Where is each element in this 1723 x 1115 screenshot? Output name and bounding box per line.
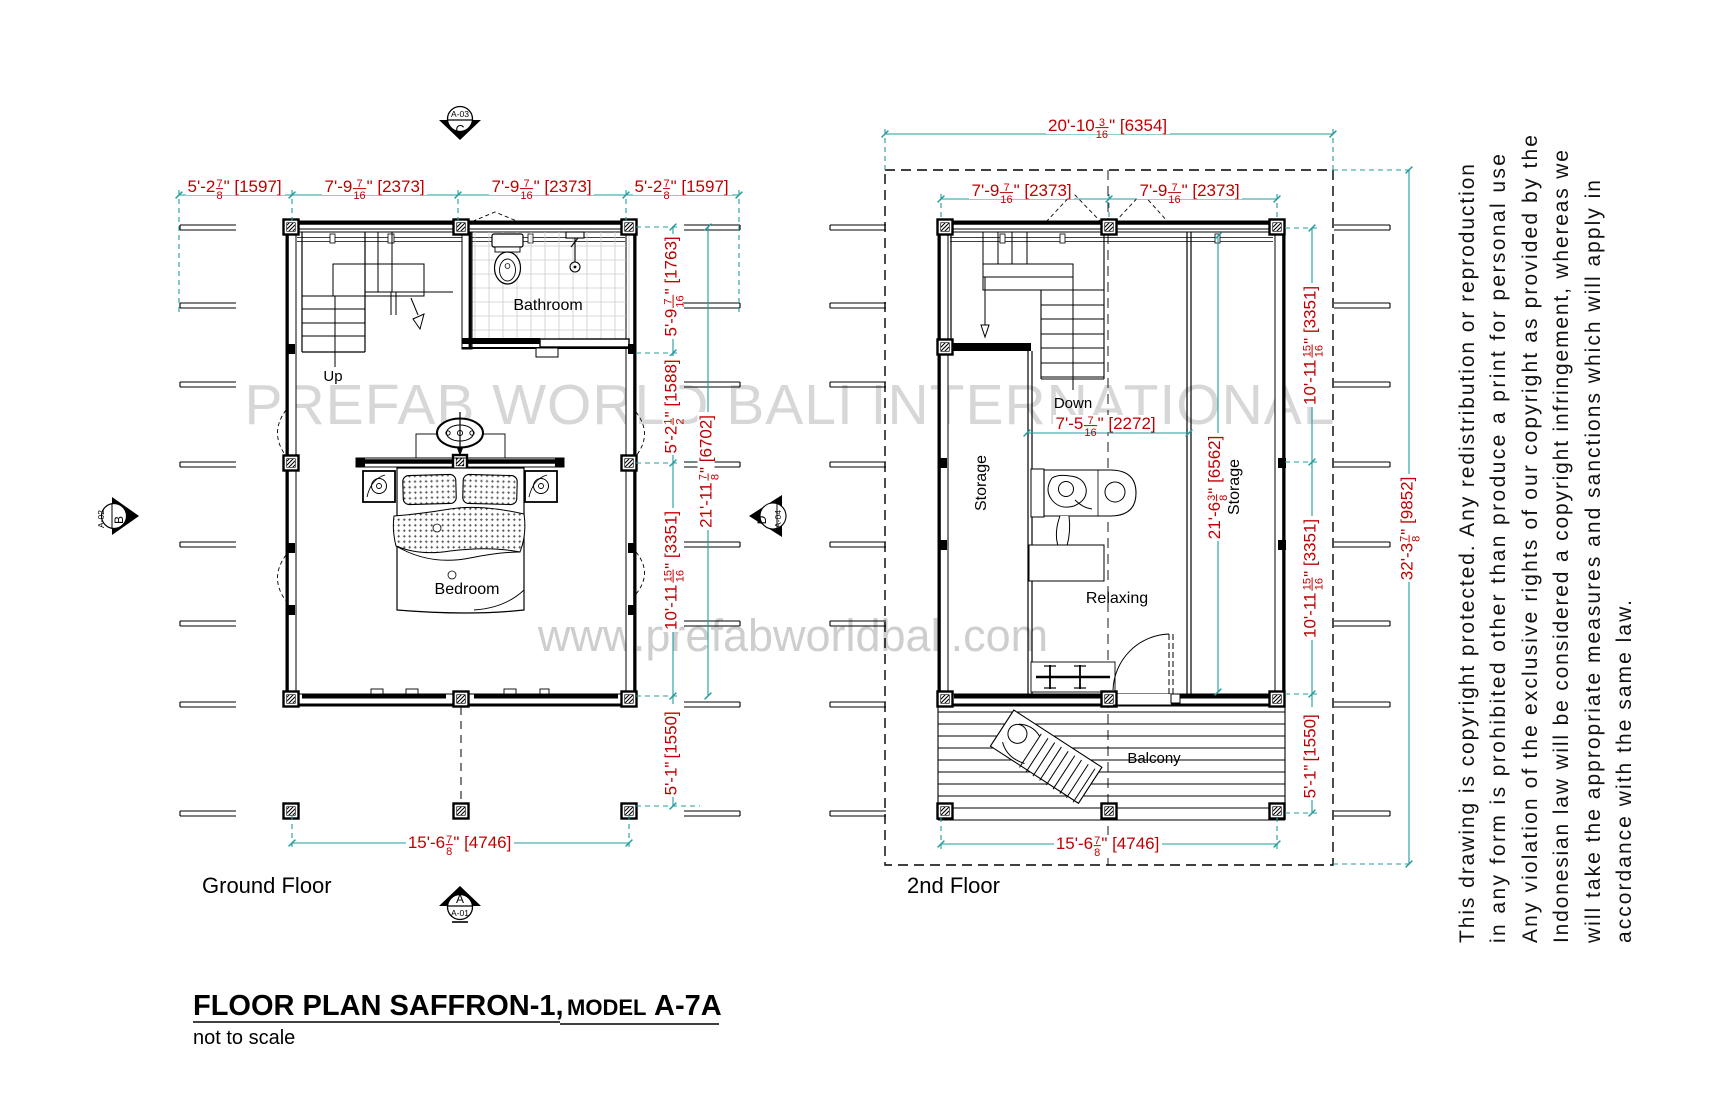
svg-text:Storage: Storage: [1226, 459, 1243, 515]
svg-text:Down: Down: [1054, 395, 1092, 412]
svg-text:A-03: A-03: [451, 109, 469, 119]
svg-text:15'-6: 15'-6: [408, 833, 445, 852]
svg-text:[1550]: [1550]: [1301, 714, 1320, 761]
svg-text:" [3351]: " [3351]: [1301, 519, 1320, 577]
svg-text:21'-11: 21'-11: [697, 482, 716, 527]
svg-text:16: 16: [1000, 194, 1012, 206]
svg-text:7'-9: 7'-9: [492, 177, 520, 196]
svg-text:" [4746]: " [4746]: [1101, 834, 1159, 853]
svg-text:32'-3: 32'-3: [1398, 543, 1417, 580]
svg-text:" [2272]: " [2272]: [1098, 414, 1156, 433]
svg-text:8: 8: [710, 474, 722, 480]
svg-text:8: 8: [1411, 536, 1423, 542]
svg-text:FLOOR PLAN SAFFRON-1,: FLOOR PLAN SAFFRON-1,: [193, 990, 564, 1022]
svg-text:A-01: A-01: [451, 908, 469, 918]
svg-text:5'-1": 5'-1": [662, 762, 681, 796]
svg-text:" [3351]: " [3351]: [662, 511, 681, 569]
svg-text:16: 16: [353, 190, 365, 202]
svg-text:7'-5: 7'-5: [1056, 414, 1084, 433]
svg-text:" [2373]: " [2373]: [534, 177, 592, 196]
svg-text:" [1597]: " [1597]: [671, 177, 729, 196]
svg-text:" [6562]: " [6562]: [1205, 436, 1224, 494]
svg-text:not to scale: not to scale: [193, 1027, 295, 1049]
svg-text:16: 16: [1084, 427, 1096, 439]
svg-text:5'-2: 5'-2: [188, 177, 216, 196]
svg-text:A-02: A-02: [96, 510, 106, 528]
svg-text:Balcony: Balcony: [1127, 750, 1181, 767]
svg-text:21'-6: 21'-6: [1205, 502, 1224, 539]
svg-text:Up: Up: [323, 368, 342, 385]
svg-text:" [9852]: " [9852]: [1398, 477, 1417, 535]
svg-text:PREFAB WORLD BALI INTERNATIONA: PREFAB WORLD BALI INTERNATIONAL: [245, 373, 1336, 437]
svg-text:www.prefabworldbali.com: www.prefabworldbali.com: [537, 610, 1048, 661]
svg-text:Bathroom: Bathroom: [513, 297, 582, 314]
svg-text:16: 16: [520, 190, 532, 202]
svg-text:" [3351]: " [3351]: [1301, 286, 1320, 344]
svg-text:" [2373]: " [2373]: [1182, 181, 1240, 200]
svg-text:16: 16: [1168, 194, 1180, 206]
svg-text:16: 16: [1314, 578, 1326, 590]
svg-text:C: C: [455, 123, 464, 137]
svg-text:[1550]: [1550]: [662, 711, 681, 758]
svg-text:2: 2: [675, 418, 687, 424]
svg-text:10'-11: 10'-11: [1301, 593, 1320, 638]
svg-text:" [1588]: " [1588]: [662, 359, 681, 417]
svg-text:20'-10: 20'-10: [1048, 116, 1095, 135]
svg-text:" [1763]: " [1763]: [662, 236, 681, 294]
svg-text:7'-9: 7'-9: [972, 181, 1000, 200]
svg-text:" [1597]: " [1597]: [224, 177, 282, 196]
svg-text:B: B: [112, 516, 126, 524]
svg-text:7'-9: 7'-9: [325, 177, 353, 196]
svg-text:8: 8: [1094, 847, 1100, 859]
svg-text:7'-9: 7'-9: [1140, 181, 1168, 200]
svg-text:A-7A: A-7A: [654, 990, 722, 1022]
svg-text:Bedroom: Bedroom: [435, 581, 500, 598]
svg-text:8: 8: [216, 190, 222, 202]
svg-text:A: A: [456, 892, 464, 906]
svg-text:8: 8: [1218, 495, 1230, 501]
svg-text:A-04: A-04: [773, 510, 783, 528]
svg-text:" [4746]: " [4746]: [453, 833, 511, 852]
svg-text:Relaxing: Relaxing: [1086, 590, 1148, 607]
svg-text:MODEL: MODEL: [567, 995, 646, 1020]
svg-text:10'-11: 10'-11: [662, 585, 681, 630]
svg-text:5'-1": 5'-1": [1301, 765, 1320, 799]
svg-text:5'-2: 5'-2: [635, 177, 663, 196]
svg-text:16: 16: [1096, 129, 1108, 141]
svg-text:8: 8: [446, 846, 452, 858]
svg-text:5'-2: 5'-2: [662, 426, 681, 454]
svg-text:10'-11: 10'-11: [1301, 360, 1320, 405]
svg-text:" [6354]: " [6354]: [1109, 116, 1167, 135]
svg-text:" [2373]: " [2373]: [1014, 181, 1072, 200]
svg-text:5'-9: 5'-9: [662, 309, 681, 337]
svg-text:" [2373]: " [2373]: [367, 177, 425, 196]
svg-text:will take the appropriate meas: will take the appropriate measures and s…: [1582, 180, 1605, 944]
svg-text:" [6702]: " [6702]: [697, 415, 716, 473]
svg-text:16: 16: [1314, 345, 1326, 357]
svg-text:2nd Floor: 2nd Floor: [907, 873, 1000, 898]
svg-text:Ground Floor: Ground Floor: [202, 873, 332, 898]
svg-text:Indonesian law will be conside: Indonesian law will be considered a copy…: [1550, 150, 1573, 943]
svg-text:16: 16: [675, 570, 687, 582]
svg-text:8: 8: [663, 190, 669, 202]
svg-text:16: 16: [675, 295, 687, 307]
svg-text:Storage: Storage: [973, 455, 990, 511]
svg-text:15'-6: 15'-6: [1056, 834, 1093, 853]
svg-text:D: D: [755, 515, 769, 524]
